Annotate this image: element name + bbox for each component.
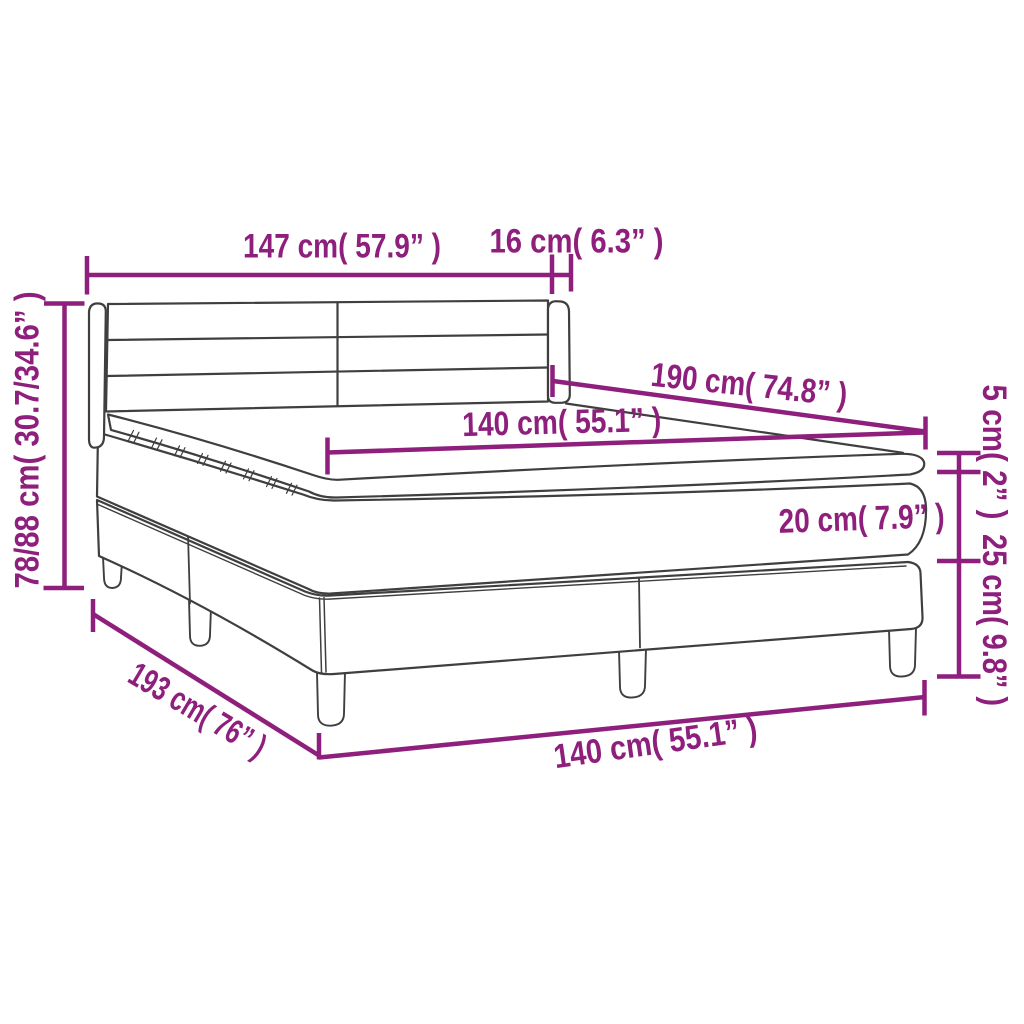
svg-text:25 cm( 9.8” ): 25 cm( 9.8” ) — [975, 534, 1013, 706]
svg-text:147 cm( 57.9” ): 147 cm( 57.9” ) — [243, 228, 441, 266]
svg-text:140 cm( 55.1” ): 140 cm( 55.1” ) — [462, 401, 662, 444]
svg-text:78/88 cm( 30.7/34.6” ): 78/88 cm( 30.7/34.6” ) — [9, 292, 47, 589]
svg-text:5 cm( 2” ): 5 cm( 2” ) — [975, 385, 1013, 520]
svg-text:20 cm( 7.9” ): 20 cm( 7.9” ) — [778, 497, 945, 541]
svg-text:16 cm( 6.3” ): 16 cm( 6.3” ) — [490, 223, 664, 261]
